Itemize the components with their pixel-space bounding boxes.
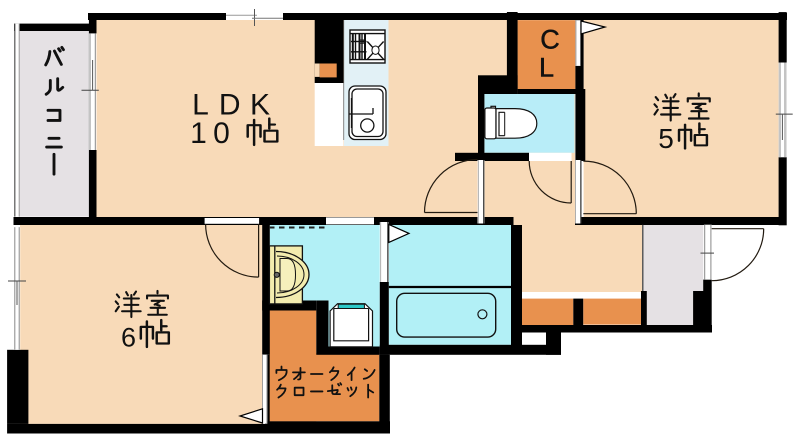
svg-text:0: 0: [213, 117, 230, 150]
svg-text:L: L: [539, 53, 554, 83]
svg-text:1: 1: [190, 117, 207, 150]
svg-text:6: 6: [121, 323, 136, 353]
svg-text:5: 5: [658, 123, 674, 154]
svg-text:K: K: [250, 89, 270, 122]
svg-text:C: C: [540, 24, 560, 54]
